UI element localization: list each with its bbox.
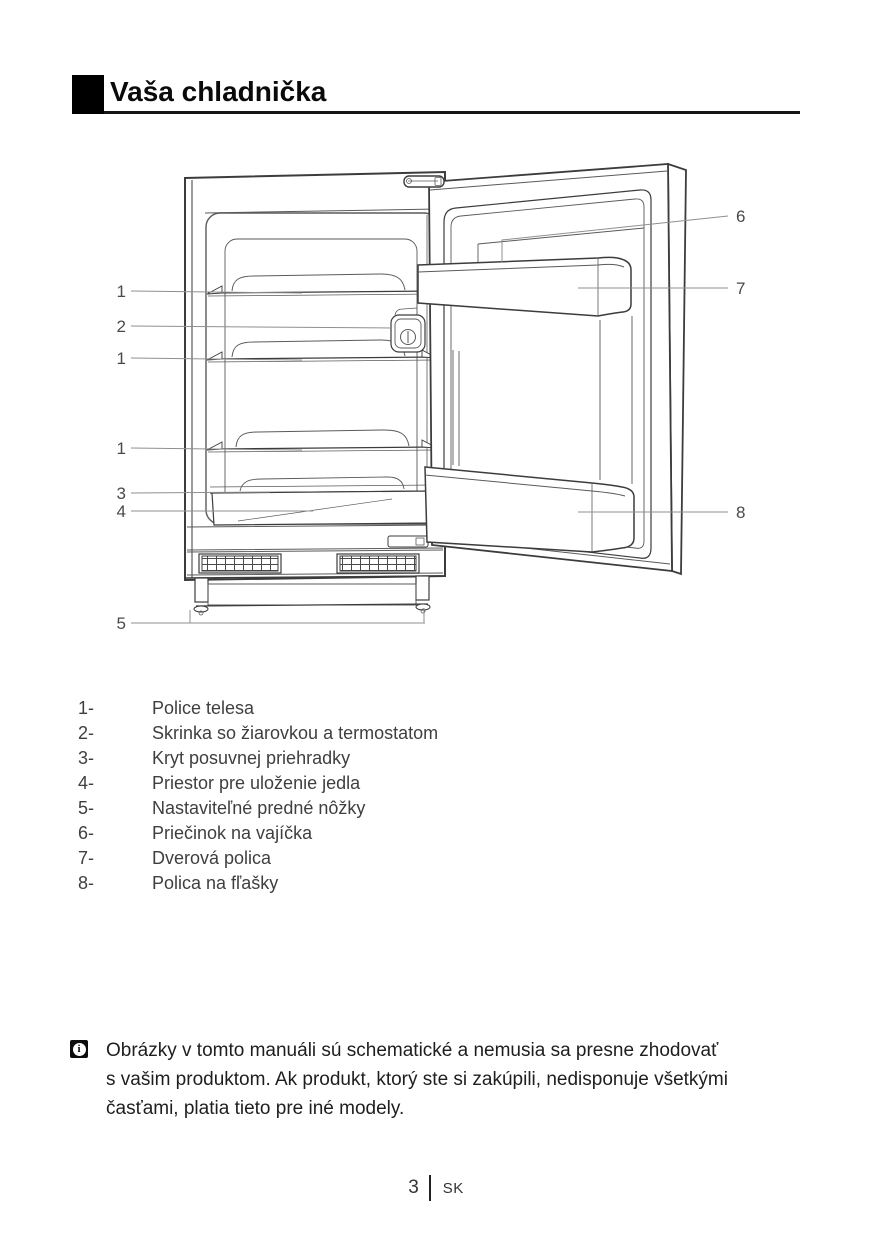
part-number: 5- <box>78 796 152 821</box>
manual-page: Vaša chladnička <box>0 0 872 1240</box>
page-footer: 3 SK <box>0 1172 872 1204</box>
part-number: 6- <box>78 821 152 846</box>
callout-6: 6 <box>736 207 745 226</box>
part-number: 7- <box>78 846 152 871</box>
part-name: Polica na fľašky <box>152 871 278 896</box>
parts-list: 1- Police telesa 2- Skrinka so žiarovkou… <box>78 696 438 896</box>
title-marker <box>72 75 104 114</box>
header-rule <box>72 111 800 114</box>
list-item: 3- Kryt posuvnej priehradky <box>78 746 438 771</box>
note-line: s vašim produktom. Ak produkt, ktorý ste… <box>106 1065 778 1094</box>
note-text: Obrázky v tomto manuáli sú schematické a… <box>106 1036 778 1123</box>
callout-1b: 1 <box>117 349 126 368</box>
top-hinge <box>404 176 444 187</box>
part-name: Nastaviteľné predné nôžky <box>152 796 365 821</box>
list-item: 8- Polica na fľašky <box>78 871 438 896</box>
part-name: Kryt posuvnej priehradky <box>152 746 350 771</box>
part-number: 8- <box>78 871 152 896</box>
info-note: i Obrázky v tomto manuáli sú schematické… <box>68 1036 778 1123</box>
cabinet-body <box>185 172 445 615</box>
base-and-feet <box>185 576 443 615</box>
part-number: 3- <box>78 746 152 771</box>
callout-2: 2 <box>117 317 126 336</box>
part-number: 1- <box>78 696 152 721</box>
callout-3: 3 <box>117 484 126 503</box>
callout-8: 8 <box>736 503 745 522</box>
list-item: 7- Dverová polica <box>78 846 438 871</box>
callout-1a: 1 <box>117 282 126 301</box>
list-item: 6- Priečinok na vajíčka <box>78 821 438 846</box>
part-name: Priestor pre uloženie jedla <box>152 771 360 796</box>
list-item: 5- Nastaviteľné predné nôžky <box>78 796 438 821</box>
part-number: 2- <box>78 721 152 746</box>
part-name: Police telesa <box>152 696 254 721</box>
list-item: 2- Skrinka so žiarovkou a termostatom <box>78 721 438 746</box>
callout-4: 4 <box>117 502 126 521</box>
note-line: časťami, platia tieto pre iné modely. <box>106 1094 778 1123</box>
list-item: 4- Priestor pre uloženie jedla <box>78 771 438 796</box>
footer-divider <box>429 1175 431 1201</box>
part-name: Skrinka so žiarovkou a termostatom <box>152 721 438 746</box>
info-icon: i <box>70 1040 88 1058</box>
list-item: 1- Police telesa <box>78 696 438 721</box>
language-code: SK <box>443 1180 464 1197</box>
part-name: Priečinok na vajíčka <box>152 821 312 846</box>
info-icon-glyph: i <box>73 1043 86 1056</box>
callout-5: 5 <box>117 614 126 633</box>
callout-7: 7 <box>736 279 745 298</box>
page-number: 3 <box>408 1177 419 1199</box>
part-number: 4- <box>78 771 152 796</box>
page-title: Vaša chladnička <box>110 75 326 109</box>
part-name: Dverová polica <box>152 846 271 871</box>
note-line: Obrázky v tomto manuáli sú schematické a… <box>106 1036 778 1065</box>
callout-1c: 1 <box>117 439 126 458</box>
